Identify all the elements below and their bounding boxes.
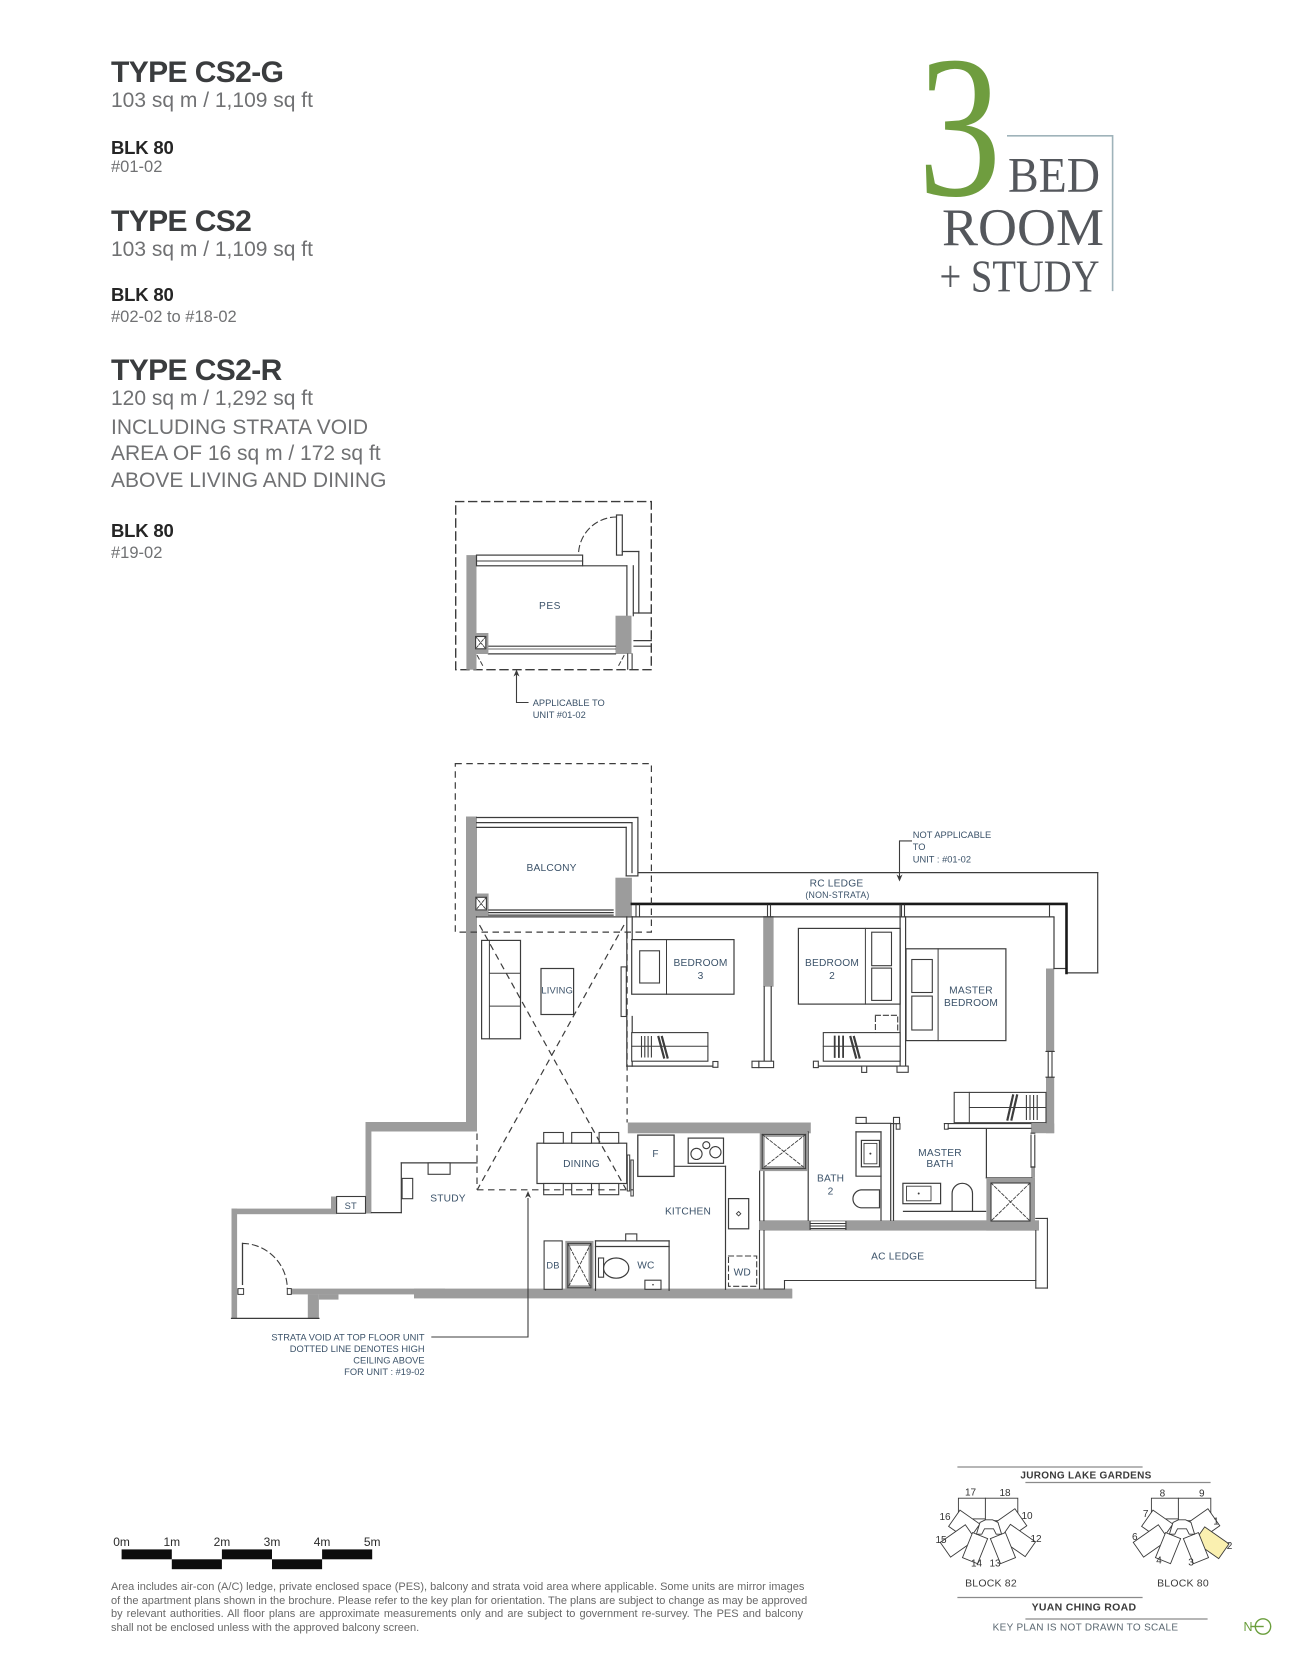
svg-text:BED: BED	[1008, 147, 1100, 203]
svg-text:BEDROOM: BEDROOM	[944, 998, 998, 1009]
svg-text:0m: 0m	[113, 1535, 130, 1549]
svg-text:FOR UNIT : #19-02: FOR UNIT : #19-02	[344, 1367, 424, 1377]
svg-text:17: 17	[965, 1488, 977, 1499]
svg-text:TO: TO	[913, 842, 926, 852]
svg-text:BALCONY: BALCONY	[527, 863, 577, 874]
svg-text:2m: 2m	[214, 1535, 231, 1549]
svg-text:10: 10	[1021, 1511, 1033, 1522]
svg-text:3: 3	[698, 971, 704, 982]
svg-text:WD: WD	[734, 1268, 751, 1279]
svg-text:9: 9	[1199, 1489, 1205, 1500]
svg-text:MASTER: MASTER	[949, 986, 993, 997]
svg-text:YUAN CHING ROAD: YUAN CHING ROAD	[1032, 1602, 1137, 1614]
svg-text:2: 2	[829, 971, 835, 982]
svg-text:18: 18	[999, 1488, 1011, 1499]
svg-text:UNIT #01-02: UNIT #01-02	[533, 710, 586, 720]
svg-text:BATH: BATH	[817, 1174, 844, 1185]
svg-text:ROOM: ROOM	[942, 199, 1104, 257]
svg-text:BEDROOM: BEDROOM	[805, 958, 859, 969]
svg-text:BEDROOM: BEDROOM	[673, 958, 727, 969]
svg-text:STUDY: STUDY	[430, 1194, 466, 1205]
svg-text:2: 2	[828, 1187, 834, 1198]
svg-text:(NON-STRATA): (NON-STRATA)	[805, 890, 869, 900]
svg-text:ST: ST	[345, 1201, 357, 1211]
svg-text:12: 12	[1030, 1534, 1042, 1545]
svg-text:STRATA VOID AT TOP FLOOR UNIT: STRATA VOID AT TOP FLOOR UNIT	[271, 1333, 425, 1343]
svg-text:JURONG LAKE GARDENS: JURONG LAKE GARDENS	[1020, 1471, 1151, 1482]
svg-text:AC LEDGE: AC LEDGE	[871, 1252, 924, 1263]
svg-text:+ STUDY: + STUDY	[940, 251, 1100, 302]
svg-text:1m: 1m	[163, 1535, 180, 1549]
svg-text:LIVING: LIVING	[541, 986, 573, 996]
svg-text:BLOCK 80: BLOCK 80	[1157, 1578, 1209, 1590]
svg-text:2: 2	[1227, 1541, 1233, 1552]
svg-text:NOT APPLICABLE: NOT APPLICABLE	[913, 830, 991, 840]
svg-text:PES: PES	[539, 601, 561, 612]
svg-text:16: 16	[939, 1512, 951, 1523]
svg-text:3m: 3m	[264, 1535, 281, 1549]
svg-text:UNIT : #01-02: UNIT : #01-02	[913, 855, 971, 865]
svg-text:1: 1	[1213, 1517, 1219, 1528]
svg-text:CEILING ABOVE: CEILING ABOVE	[353, 1356, 424, 1366]
svg-text:F: F	[652, 1149, 658, 1160]
svg-text:RC LEDGE: RC LEDGE	[810, 879, 864, 890]
svg-text:DOTTED LINE DENOTES HIGH: DOTTED LINE DENOTES HIGH	[290, 1344, 425, 1354]
svg-text:BATH: BATH	[926, 1159, 953, 1170]
svg-text:APPLICABLE TO: APPLICABLE TO	[533, 698, 605, 708]
svg-text:KEY PLAN IS NOT DRAWN TO SCALE: KEY PLAN IS NOT DRAWN TO SCALE	[993, 1623, 1179, 1634]
svg-text:15: 15	[935, 1535, 947, 1546]
svg-text:3: 3	[1188, 1558, 1194, 1569]
svg-text:4: 4	[1156, 1556, 1162, 1567]
svg-text:BLOCK 82: BLOCK 82	[965, 1578, 1017, 1590]
svg-text:8: 8	[1160, 1489, 1166, 1500]
svg-text:14: 14	[971, 1559, 983, 1570]
svg-text:7: 7	[1143, 1509, 1149, 1520]
svg-text:DB: DB	[546, 1261, 559, 1271]
svg-text:6: 6	[1132, 1532, 1138, 1543]
svg-text:MASTER: MASTER	[918, 1148, 962, 1159]
svg-text:DINING: DINING	[563, 1159, 600, 1170]
svg-text:5m: 5m	[364, 1535, 381, 1549]
svg-text:WC: WC	[637, 1261, 654, 1272]
svg-text:4m: 4m	[314, 1535, 331, 1549]
svg-text:13: 13	[989, 1559, 1001, 1570]
svg-text:KITCHEN: KITCHEN	[665, 1207, 711, 1218]
